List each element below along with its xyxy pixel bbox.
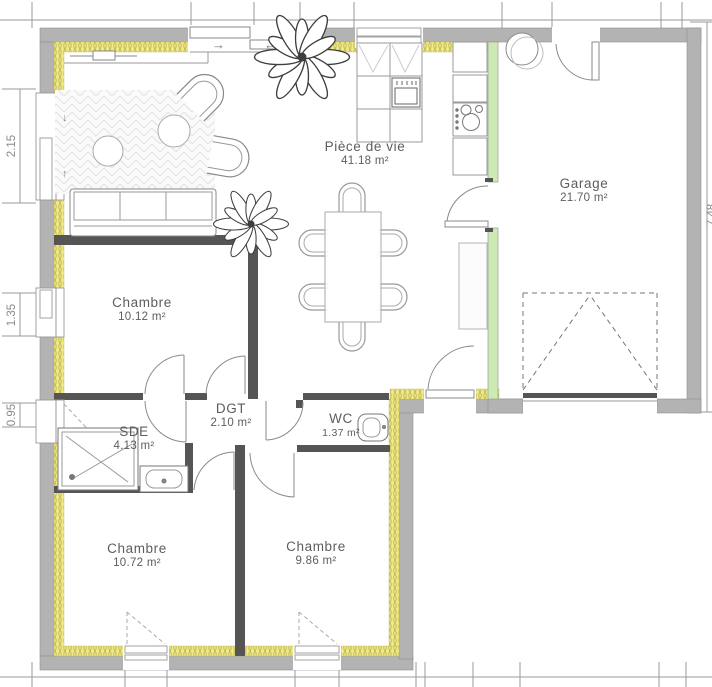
dining-set [299, 183, 407, 351]
garage-partition-wall [488, 42, 498, 399]
kitchen-tall-units [453, 42, 487, 175]
toilet [358, 414, 388, 441]
living-room: ↓ ↑ [55, 51, 252, 236]
door-garage-interior [445, 186, 488, 227]
door-sde [145, 401, 186, 442]
plant-small [214, 189, 289, 260]
garage-ceiling-hatch [523, 293, 657, 390]
oven [392, 78, 420, 107]
svg-text:↓: ↓ [62, 112, 68, 124]
sideboard [64, 51, 208, 63]
washbasin [140, 466, 188, 492]
shower [58, 428, 138, 490]
floor-plan: → ← [0, 0, 712, 687]
door-back [424, 346, 476, 414]
window-bottom-2 [293, 612, 341, 670]
bathroom-fixtures [58, 414, 388, 492]
floor-plan-canvas: → ← [0, 0, 712, 687]
door-dgt-living [206, 356, 245, 394]
dining-table [325, 212, 381, 322]
hall-cupboard [459, 243, 487, 329]
door-chambre-nord [145, 355, 184, 394]
window-left-2 [36, 288, 64, 337]
armchair [207, 136, 252, 180]
slide-arrow-right: → [212, 37, 225, 52]
side-table [93, 136, 123, 166]
garage-features [506, 33, 657, 413]
door-garage-entry [552, 27, 600, 80]
door-chambre-sud-ouest [194, 452, 234, 490]
door-chambre-sud [250, 453, 294, 497]
side-table [158, 115, 190, 147]
sofa [70, 189, 216, 236]
garage-door [523, 393, 657, 413]
window-bottom-1 [123, 612, 169, 670]
svg-text:↑: ↑ [62, 168, 68, 180]
